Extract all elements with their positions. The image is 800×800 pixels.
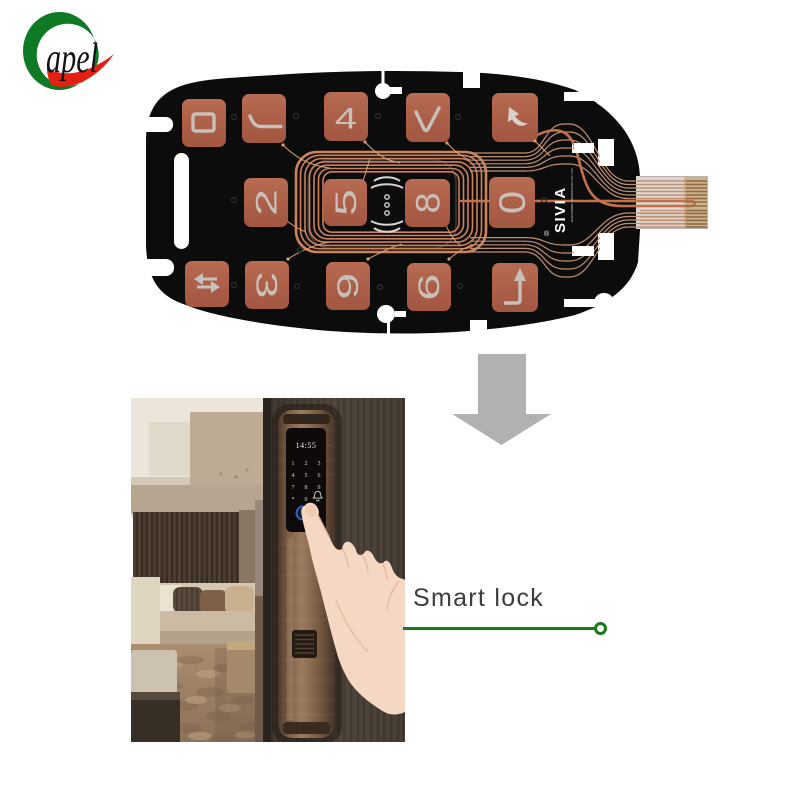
- svg-text:9: 9: [412, 273, 445, 300]
- svg-text:3: 3: [250, 271, 283, 298]
- svg-text:8: 8: [408, 192, 447, 213]
- svg-text:4: 4: [292, 473, 295, 479]
- svg-text:14:55: 14:55: [296, 441, 317, 450]
- svg-text:0: 0: [305, 497, 308, 503]
- svg-text:2: 2: [305, 461, 308, 467]
- svg-text:5: 5: [305, 473, 308, 479]
- svg-text:8: 8: [305, 485, 308, 491]
- svg-text:*: *: [292, 497, 295, 503]
- svg-text:0: 0: [492, 191, 533, 214]
- svg-text:1: 1: [292, 461, 295, 467]
- svg-text:SIVIA: SIVIA: [552, 186, 569, 233]
- svg-text:apel: apel: [46, 34, 98, 81]
- svg-text:9: 9: [318, 485, 321, 491]
- svg-text:4: 4: [335, 102, 358, 136]
- svg-text:®: ®: [544, 230, 550, 238]
- svg-text:2: 2: [250, 189, 283, 216]
- svg-text:7: 7: [292, 485, 295, 491]
- svg-text:5: 5: [330, 189, 363, 216]
- svg-text:6: 6: [318, 473, 321, 479]
- svg-text:ELECTRONIC TECHNOLOGY CO.,LTD: ELECTRONIC TECHNOLOGY CO.,LTD: [570, 168, 574, 222]
- svg-text:3: 3: [318, 461, 321, 467]
- svg-text:6: 6: [331, 272, 364, 299]
